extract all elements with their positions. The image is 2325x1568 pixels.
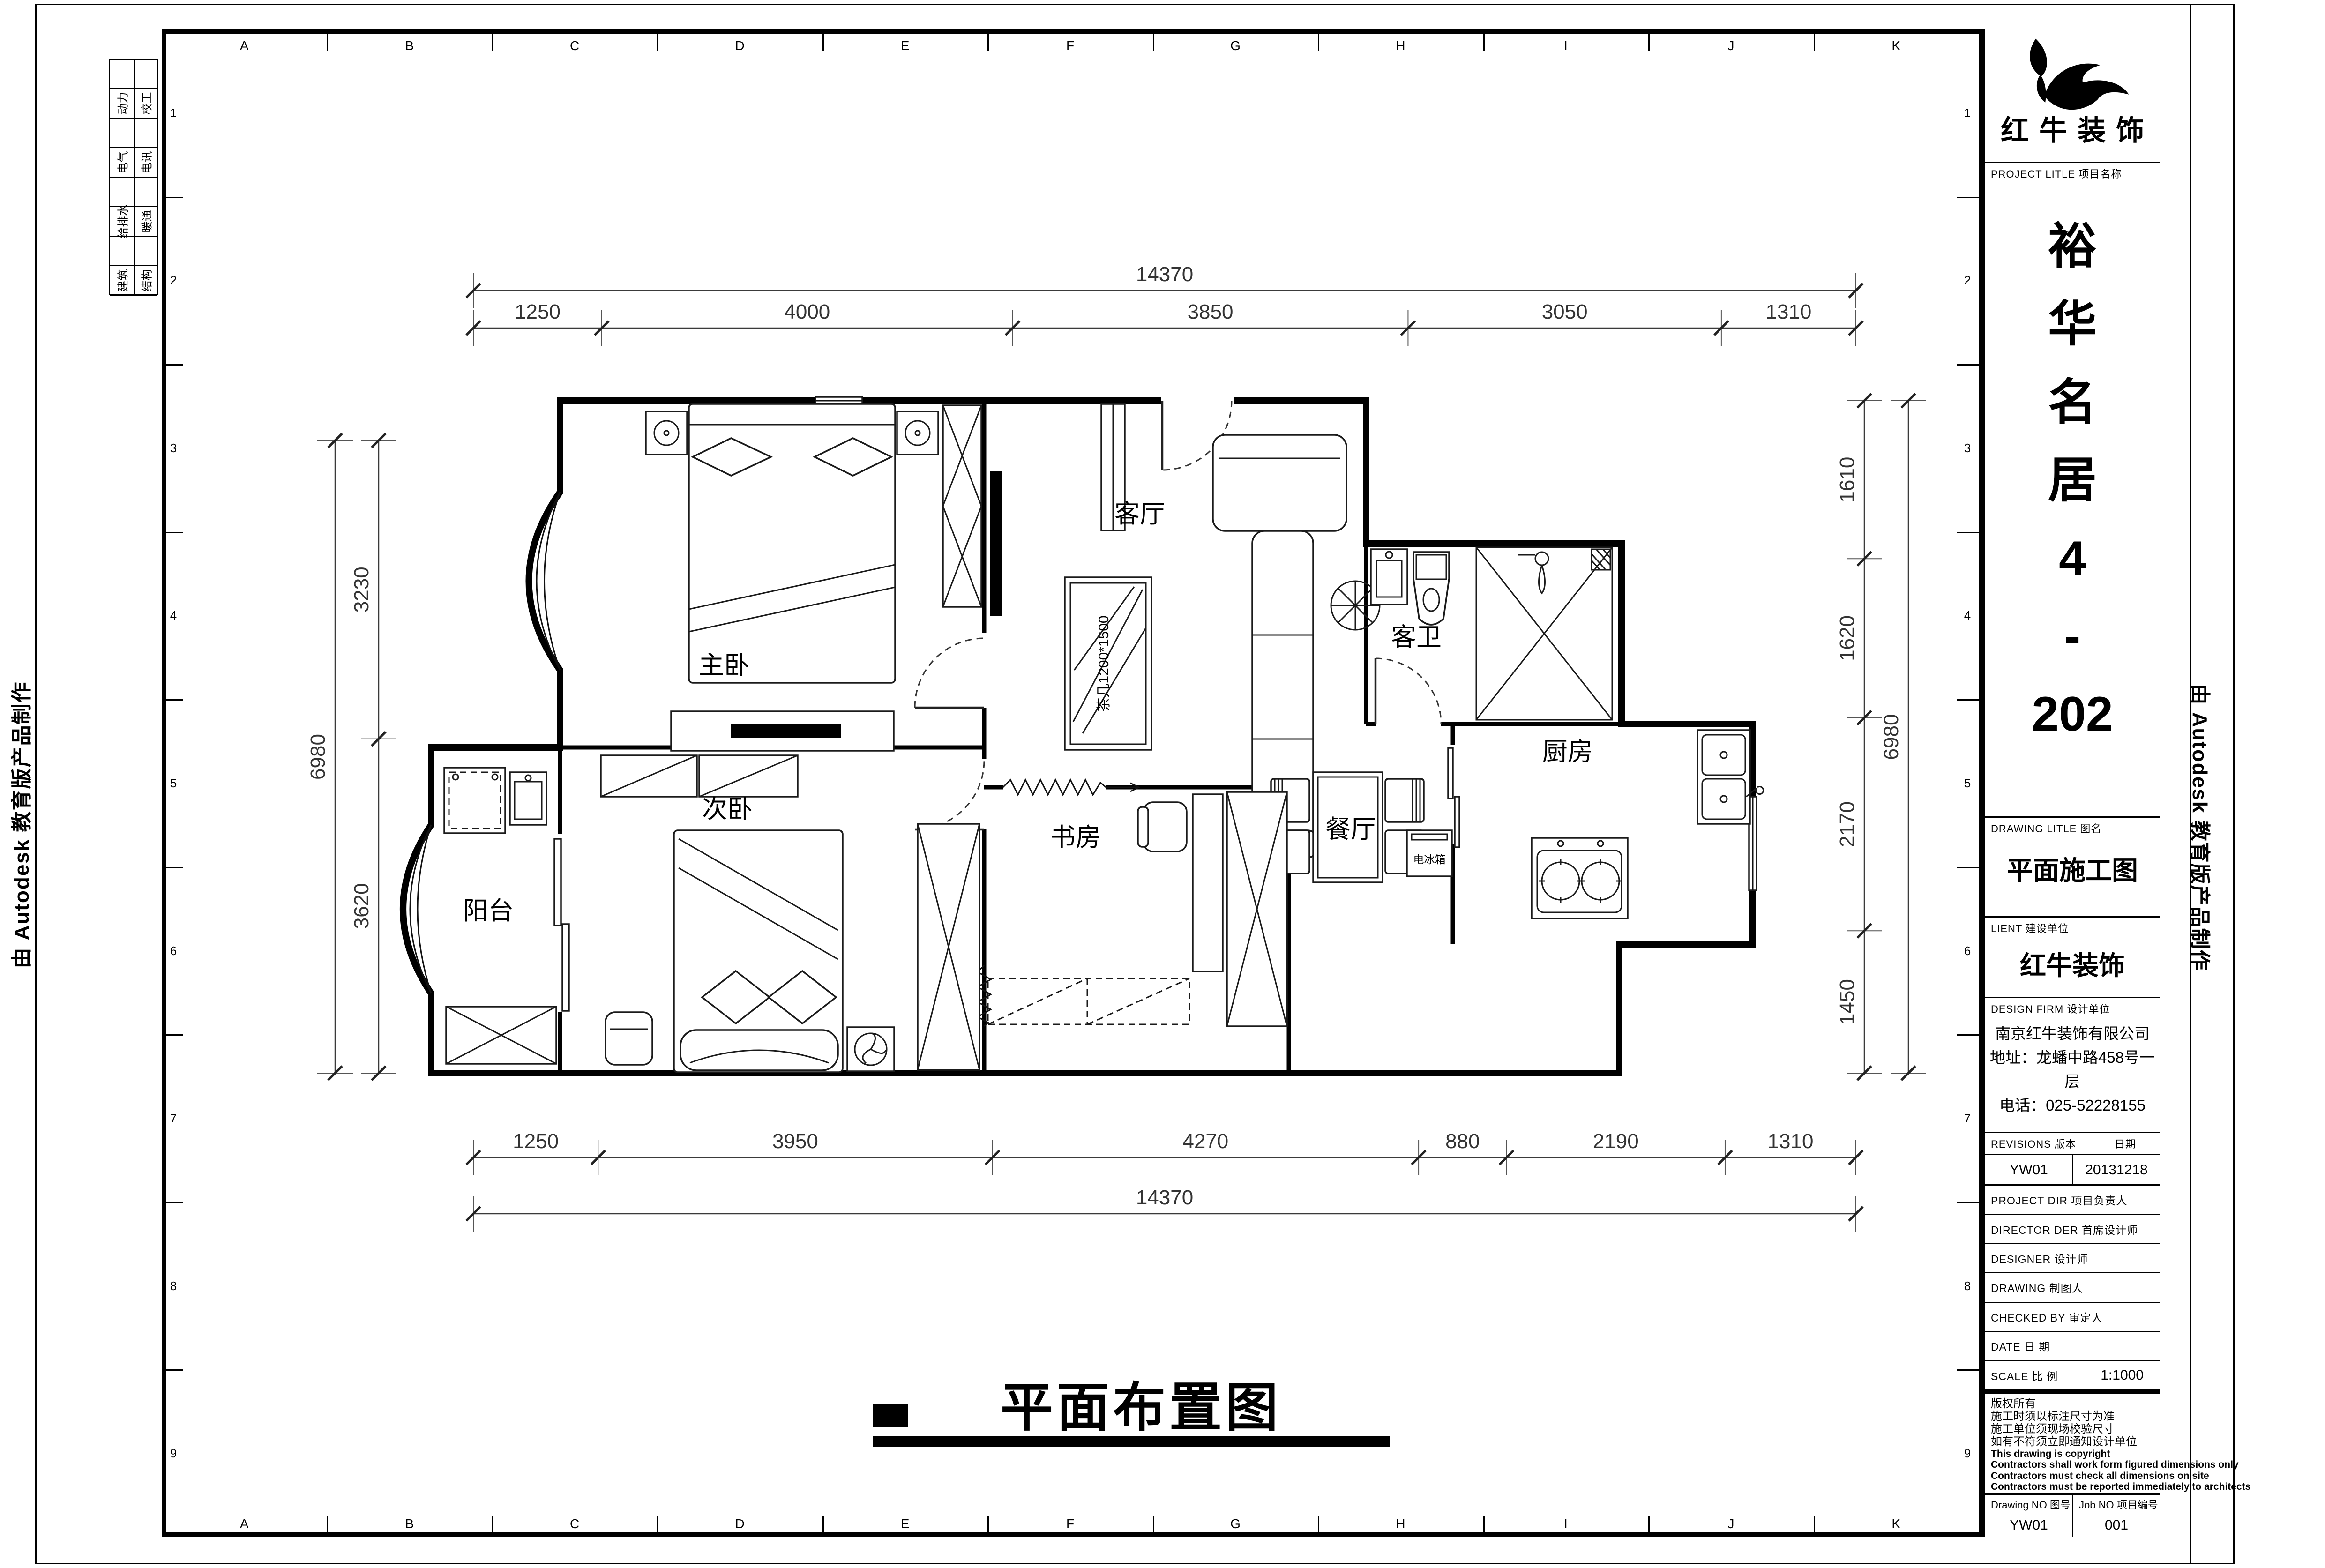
second-wardrobe (918, 824, 979, 1070)
drawing-no-value: YW01 (1985, 1517, 2072, 1533)
bathroom-sink (1371, 549, 1407, 605)
revisions-label: REVISIONS 版本 (1991, 1136, 2076, 1151)
overhead-cabinets (601, 755, 798, 797)
design-firm-line: 电话：025-52228155 (1985, 1093, 2160, 1117)
revisions-date-label: 日期 (2115, 1136, 2155, 1151)
shower-area (1476, 547, 1612, 720)
job-no-value: 001 (2073, 1517, 2160, 1533)
dimension-value: 1310 (1768, 1130, 1814, 1153)
drawing-title: 平面施工图 (1985, 850, 2160, 888)
info-rows-section: PROJECT DIR 项目负责人DIRECTOR DER 首席设计师DESIG… (1985, 1186, 2160, 1390)
project-name-char: 4 (2059, 520, 2086, 597)
master-bay-window-arcs (537, 492, 560, 670)
study-desk (1193, 794, 1223, 971)
floor-plan-canvas: 1437012504000385030501310125039504270880… (0, 0, 2325, 1568)
info-row-label: DRAWING 制图人 (1985, 1279, 2160, 1295)
info-row: SCALE 比 例1:1000 (1985, 1361, 2160, 1390)
design-firm-section: DESIGN FIRM 设计单位 南京红牛装饰有限公司地址：龙蟠中路458号一层… (1985, 998, 2160, 1133)
drawing-sheet: 由 Autodesk 教育版产品制作 由 Autodesk 教育版产品制作 动力… (0, 0, 2325, 1568)
study-squiggle-arrow (1106, 783, 1139, 791)
room-label-living-room: 客厅 (1114, 500, 1165, 528)
project-name-char: - (2064, 597, 2081, 675)
balcony-storage (446, 1007, 556, 1064)
nightstand-left (646, 411, 687, 455)
revision-no: YW01 (1985, 1155, 2072, 1186)
info-row: PROJECT DIR 项目负责人 (1985, 1186, 2160, 1215)
project-name-section: PROJECT LITLE 项目名称 裕华名居4-202 (1985, 162, 2160, 818)
dimension-value: 3850 (1188, 300, 1234, 323)
dimension-value: 1250 (513, 1130, 559, 1153)
title-block: 红牛装饰 PROJECT LITLE 项目名称 裕华名居4-202 DRAWIN… (1985, 29, 2160, 1537)
client-name: 红牛装饰 (1985, 945, 2160, 983)
drawing-no-label: Drawing NO 图号 (1985, 1495, 2072, 1512)
master-bed (689, 404, 895, 683)
dimension-value: 1250 (515, 300, 561, 323)
info-row-label: DESIGNER 设计师 (1985, 1250, 2160, 1266)
info-row: DRAWING 制图人 (1985, 1273, 2160, 1302)
info-row: DIRECTOR DER 首席设计师 (1985, 1215, 2160, 1244)
dimension-value: 1610 (1836, 457, 1859, 503)
master-wardrobe (943, 405, 981, 607)
stove (1532, 838, 1628, 918)
room-labels-layer: 主卧次卧客厅客卫书房餐厅厨房阳台茶几1200*1500电冰箱平面布置图 (463, 500, 1593, 1437)
dimension-total: 6980 (307, 734, 329, 780)
dimension-value: 3230 (350, 567, 373, 612)
project-label: PROJECT LITLE 项目名称 (1985, 163, 2160, 182)
copyright-line: 如有不符须立即通知设计单位 (1991, 1436, 2160, 1449)
copyright-section: 版权所有施工时须以标注尺寸为准施工单位须现场校验尺寸如有不符须立即通知设计单位T… (1985, 1394, 2160, 1495)
info-row-label: CHECKED BY 审定人 (1985, 1309, 2160, 1325)
dimension-total: 6980 (1880, 714, 1903, 760)
design-firm-line: 地址：龙蟠中路458号一层 (1985, 1045, 2160, 1093)
room-label-guest-bathroom: 客卫 (1391, 623, 1442, 651)
dimension-value: 3950 (772, 1130, 818, 1153)
study-cabinet-dashed (988, 978, 1189, 1024)
copyright-line: This drawing is copyright (1991, 1449, 2160, 1460)
room-label-dining-room: 餐厅 (1325, 815, 1376, 844)
coffee-table-label: 茶几1200*1500 (1096, 615, 1112, 711)
info-row-label: DATE 日 期 (1985, 1338, 2160, 1354)
client-label: LIENT 建设单位 (1985, 918, 2160, 936)
drawing-title-section: DRAWING LITLE 图名 平面施工图 (1985, 818, 2160, 918)
info-row: DATE 日 期 (1985, 1332, 2160, 1361)
bedroom-armchair (606, 1012, 652, 1065)
job-no-cell: Job NO 项目编号 001 (2072, 1495, 2160, 1537)
balcony-sink (510, 772, 546, 825)
nightstand-right (897, 411, 938, 455)
plan-title-underline (873, 1436, 1390, 1447)
revisions-section: REVISIONS 版本 日期 YW01 20131218 (1985, 1133, 2160, 1186)
info-row-label: SCALE 比 例 (1985, 1367, 2101, 1383)
dimension-value: 880 (1445, 1130, 1480, 1153)
copyright-line: Contractors shall work form figured dime… (1991, 1459, 2160, 1471)
study-wardrobe (1227, 792, 1287, 1026)
fridge-label: 电冰箱 (1413, 853, 1446, 866)
copyright-text: 版权所有施工时须以标注尺寸为准施工单位须现场校验尺寸如有不符须立即通知设计单位T… (1985, 1394, 2160, 1493)
logo-section: 红牛装饰 (1985, 29, 2160, 162)
dimension-total: 14370 (1136, 263, 1193, 286)
copyright-line: 施工时须以标注尺寸为准 (1991, 1411, 2160, 1423)
second-bed (674, 830, 843, 1072)
copyright-line: Contractors must check all dimensions on… (1991, 1471, 2160, 1482)
project-name-char: 202 (2032, 675, 2113, 753)
room-label-balcony: 阳台 (463, 897, 514, 925)
rednbull-logo-icon (2002, 36, 2143, 115)
dimension-value: 1620 (1836, 615, 1859, 661)
second-bedroom-door (915, 760, 984, 829)
master-dresser (671, 711, 894, 751)
washing-machine (444, 768, 505, 833)
bathroom-door (1376, 658, 1441, 724)
plan-title: 平面布置图 (1001, 1378, 1282, 1437)
project-name-char: 居 (2048, 441, 2097, 519)
master-bedroom-door (915, 638, 984, 708)
revisions-values: YW01 20131218 (1985, 1154, 2160, 1186)
dimension-total: 14370 (1136, 1186, 1193, 1209)
info-row: DESIGNER 设计师 (1985, 1244, 2160, 1273)
fan-unit (847, 1027, 894, 1071)
room-label-kitchen: 厨房 (1542, 738, 1593, 766)
dimension-value: 2190 (1593, 1130, 1639, 1153)
info-row-value: 1:1000 (2101, 1367, 2160, 1383)
study-chair (1138, 802, 1187, 851)
toilet (1413, 552, 1449, 625)
dimension-value: 3620 (350, 883, 373, 929)
project-name-char: 华 (2048, 285, 2097, 363)
dimension-value: 1310 (1765, 300, 1811, 323)
info-row-label: DIRECTOR DER 首席设计师 (1985, 1221, 2160, 1237)
project-name: 裕华名居4-202 (1985, 182, 2160, 754)
drawing-no-cell: Drawing NO 图号 YW01 (1985, 1495, 2072, 1537)
dimension-value: 4000 (784, 300, 830, 323)
dimension-value: 2170 (1836, 801, 1859, 847)
copyright-line: 版权所有 (1991, 1398, 2160, 1411)
revisions-header: REVISIONS 版本 日期 (1985, 1133, 2160, 1152)
tv-panel (990, 471, 1002, 616)
room-label-second-bedroom: 次卧 (702, 795, 753, 823)
client-section: LIENT 建设单位 红牛装饰 (1985, 918, 2160, 998)
info-row-label: PROJECT DIR 项目负责人 (1985, 1192, 2160, 1208)
job-no-label: Job NO 项目编号 (2073, 1495, 2160, 1512)
drawing-number-section: Drawing NO 图号 YW01 Job NO 项目编号 001 (1985, 1495, 2160, 1537)
copyright-line: 施工单位须现场校验尺寸 (1991, 1423, 2160, 1436)
dimension-value: 4270 (1182, 1130, 1228, 1153)
drawing-title-label: DRAWING LITLE 图名 (1985, 818, 2160, 836)
design-firm-info: 南京红牛装饰有限公司地址：龙蟠中路458号一层电话：025-52228155 (1985, 1022, 2160, 1118)
room-label-study: 书房 (1050, 823, 1101, 851)
dimension-value: 1450 (1836, 979, 1859, 1025)
project-name-char: 裕 (2048, 208, 2097, 285)
revision-date: 20131218 (2072, 1155, 2160, 1186)
balcony-sliding-door (554, 839, 569, 1011)
company-name: 红牛装饰 (1990, 115, 2154, 146)
plan-title-mark (873, 1404, 908, 1427)
study-window-squiggle (1003, 780, 1106, 795)
info-row: CHECKED BY 审定人 (1985, 1303, 2160, 1332)
copyright-line: Contractors must be reported immediately… (1991, 1481, 2160, 1493)
entry-gap (1161, 396, 1234, 406)
room-label-master-bedroom: 主卧 (699, 651, 749, 679)
thick-divider (1985, 1390, 2160, 1394)
design-firm-line: 南京红牛装饰有限公司 (1985, 1022, 2160, 1045)
design-firm-label: DESIGN FIRM 设计单位 (1985, 998, 2160, 1017)
project-name-char: 名 (2048, 364, 2097, 441)
dimension-value: 3050 (1542, 300, 1588, 323)
